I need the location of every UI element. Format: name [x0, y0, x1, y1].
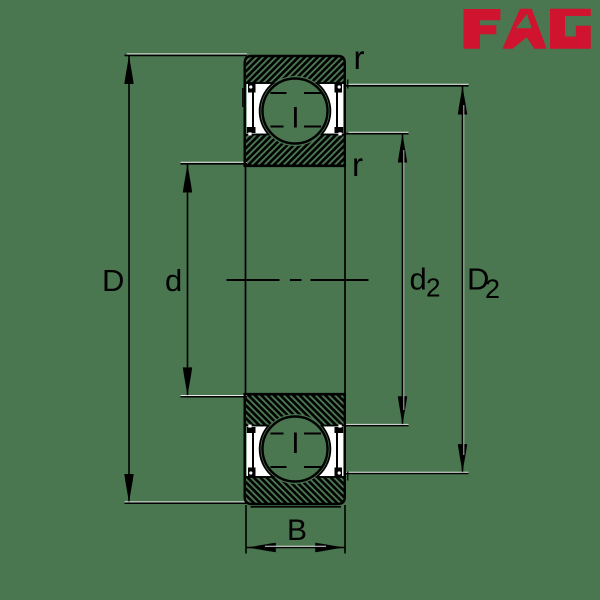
svg-text:2: 2 [426, 273, 440, 303]
svg-text:d: d [410, 262, 427, 297]
svg-text:r: r [352, 146, 363, 183]
svg-text:D: D [102, 263, 124, 298]
svg-text:2: 2 [485, 274, 500, 304]
svg-text:B: B [287, 514, 307, 547]
svg-text:r: r [354, 39, 365, 76]
svg-text:d: d [165, 263, 182, 298]
